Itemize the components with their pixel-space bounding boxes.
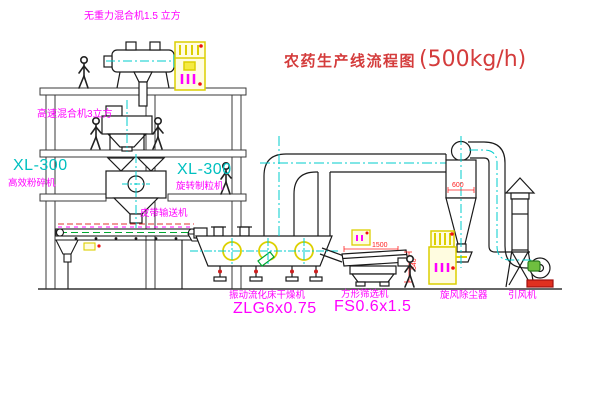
label-belt-conveyor: 皮带输送机 <box>140 209 188 219</box>
sifter-base <box>352 274 394 282</box>
indicator-light <box>366 232 369 235</box>
dim-cyclone: 600 <box>452 182 464 189</box>
title-capacity: (500kg/h) <box>419 47 526 72</box>
floor-slab-low-right <box>168 194 246 201</box>
junction-box <box>84 243 95 250</box>
floor-slab-low-left <box>40 194 106 201</box>
indicator-light <box>450 232 454 236</box>
high-speed-mixer <box>102 100 152 152</box>
induced-draft-fan <box>527 258 553 287</box>
label-dryer-model: ZLG6x0.75 <box>233 301 317 317</box>
conveyor-roller <box>57 229 64 236</box>
label-sifter-model: FS0.6x1.5 <box>334 299 411 315</box>
exhaust-duct <box>260 136 450 236</box>
control-cabinet-cyclone <box>429 231 456 284</box>
page-title: 农药生产线流程图 (500kg/h) <box>284 47 526 72</box>
label-cyclone: 旋风除尘器 <box>440 291 488 301</box>
label-granulator-model: XL-300 <box>177 162 232 178</box>
title-text: 农药生产线流程图 <box>284 50 416 71</box>
belt-conveyor <box>56 224 196 289</box>
fan-base <box>527 280 553 287</box>
mixer-discharge-pipe <box>139 82 147 106</box>
indicator-light <box>97 244 100 247</box>
control-cabinet-top <box>175 42 205 90</box>
spring-mounts <box>214 266 322 281</box>
diagram-canvas: 600 <box>0 0 600 403</box>
label-crusher-name: 高效粉碎机 <box>8 179 56 189</box>
label-fan: 引风机 <box>508 291 537 301</box>
label-high-speed-mixer: 高速混合机3立方 <box>37 110 113 120</box>
indicator-light <box>199 44 203 48</box>
indicator-light <box>451 266 455 270</box>
person-icon <box>79 57 89 88</box>
fan-motor <box>528 261 540 271</box>
floor-slab-mid <box>40 150 246 157</box>
label-granulator-name: 旋转制粒机 <box>176 182 224 192</box>
person-icon <box>91 118 101 149</box>
square-sifter <box>320 248 410 286</box>
conveyor-discharge-hopper <box>56 240 78 254</box>
indicator-light <box>198 82 202 86</box>
control-cabinet-sifter <box>352 230 370 245</box>
dim-sifter-length: 1500 <box>372 242 388 249</box>
label-crusher-model: XL-300 <box>13 158 68 174</box>
label-gravity-mixer: 无重力混合机1.5 立方 <box>84 12 181 22</box>
centerlines <box>260 136 450 236</box>
